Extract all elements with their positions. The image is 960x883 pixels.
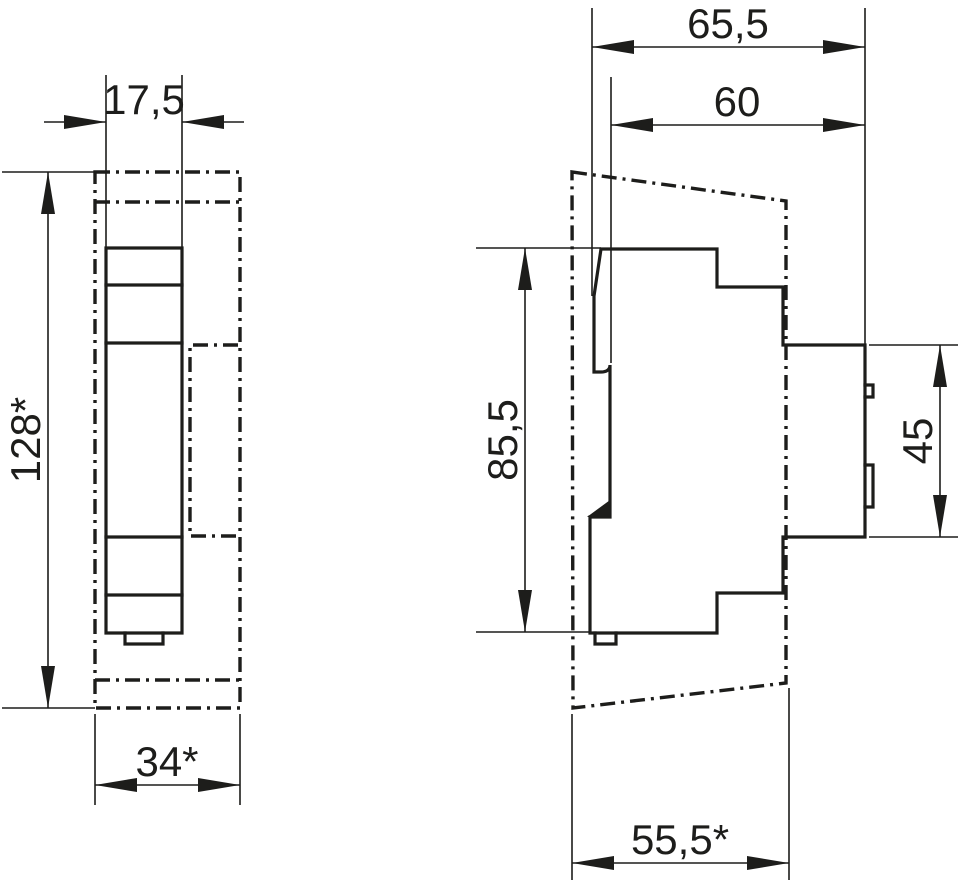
dimension-side-lower-depth: 55,5*	[572, 688, 789, 880]
dim-label-side-body-height: 85,5	[479, 399, 526, 481]
front-phantom-accessory-cutout	[190, 345, 238, 536]
arrowhead-down-icon	[41, 666, 55, 708]
dim-label-side-lower-depth: 55,5*	[631, 816, 729, 863]
side-din-clip-barb	[590, 502, 609, 516]
arrowhead-down-icon	[933, 495, 947, 537]
side-view: 65,5 60 85,5 45	[476, 0, 958, 880]
technical-drawing-page: 17,5 128* 34*	[0, 0, 960, 883]
arrowhead-down-icon	[518, 590, 532, 632]
dimension-front-height: 128*	[2, 172, 95, 708]
din-device-dimension-drawing: 17,5 128* 34*	[0, 0, 960, 883]
front-phantom-envelope	[95, 172, 240, 708]
arrowhead-up-icon	[41, 172, 55, 214]
dim-label-front-height: 128*	[2, 397, 49, 483]
dimension-side-terminal-height: 45	[869, 345, 958, 537]
dim-label-front-overall-width: 34*	[135, 738, 198, 785]
side-phantom-envelope	[572, 172, 786, 708]
arrowhead-right-icon	[198, 778, 240, 792]
arrowhead-left-icon	[182, 115, 224, 129]
arrowhead-right-icon	[747, 856, 789, 870]
dimension-front-width: 17,5	[44, 75, 244, 248]
arrowhead-left-icon	[572, 856, 614, 870]
arrowhead-right-icon	[823, 40, 865, 54]
dimension-front-overall-width: 34*	[95, 714, 240, 805]
dimension-side-overall-depth: 65,5	[592, 0, 865, 345]
front-body-bottom-tab	[125, 633, 163, 644]
dim-label-side-body-depth: 60	[714, 78, 761, 125]
dimension-side-body-height: 85,5	[476, 248, 601, 632]
arrowhead-right-icon	[64, 115, 106, 129]
dim-label-side-terminal-height: 45	[894, 418, 941, 465]
side-body-outline	[590, 249, 865, 633]
arrowhead-left-icon	[95, 778, 137, 792]
arrowhead-left-icon	[592, 40, 634, 54]
arrowhead-left-icon	[611, 118, 653, 132]
dim-label-side-overall-depth: 65,5	[687, 0, 769, 47]
dim-label-front-width: 17,5	[103, 76, 185, 123]
side-body-bottom-tab	[595, 633, 616, 644]
arrowhead-right-icon	[823, 118, 865, 132]
arrowhead-up-icon	[518, 248, 532, 290]
dimension-side-body-depth: 60	[611, 77, 865, 363]
arrowhead-up-icon	[933, 345, 947, 387]
front-body-outline	[106, 248, 182, 633]
front-view: 17,5 128* 34*	[2, 75, 244, 805]
